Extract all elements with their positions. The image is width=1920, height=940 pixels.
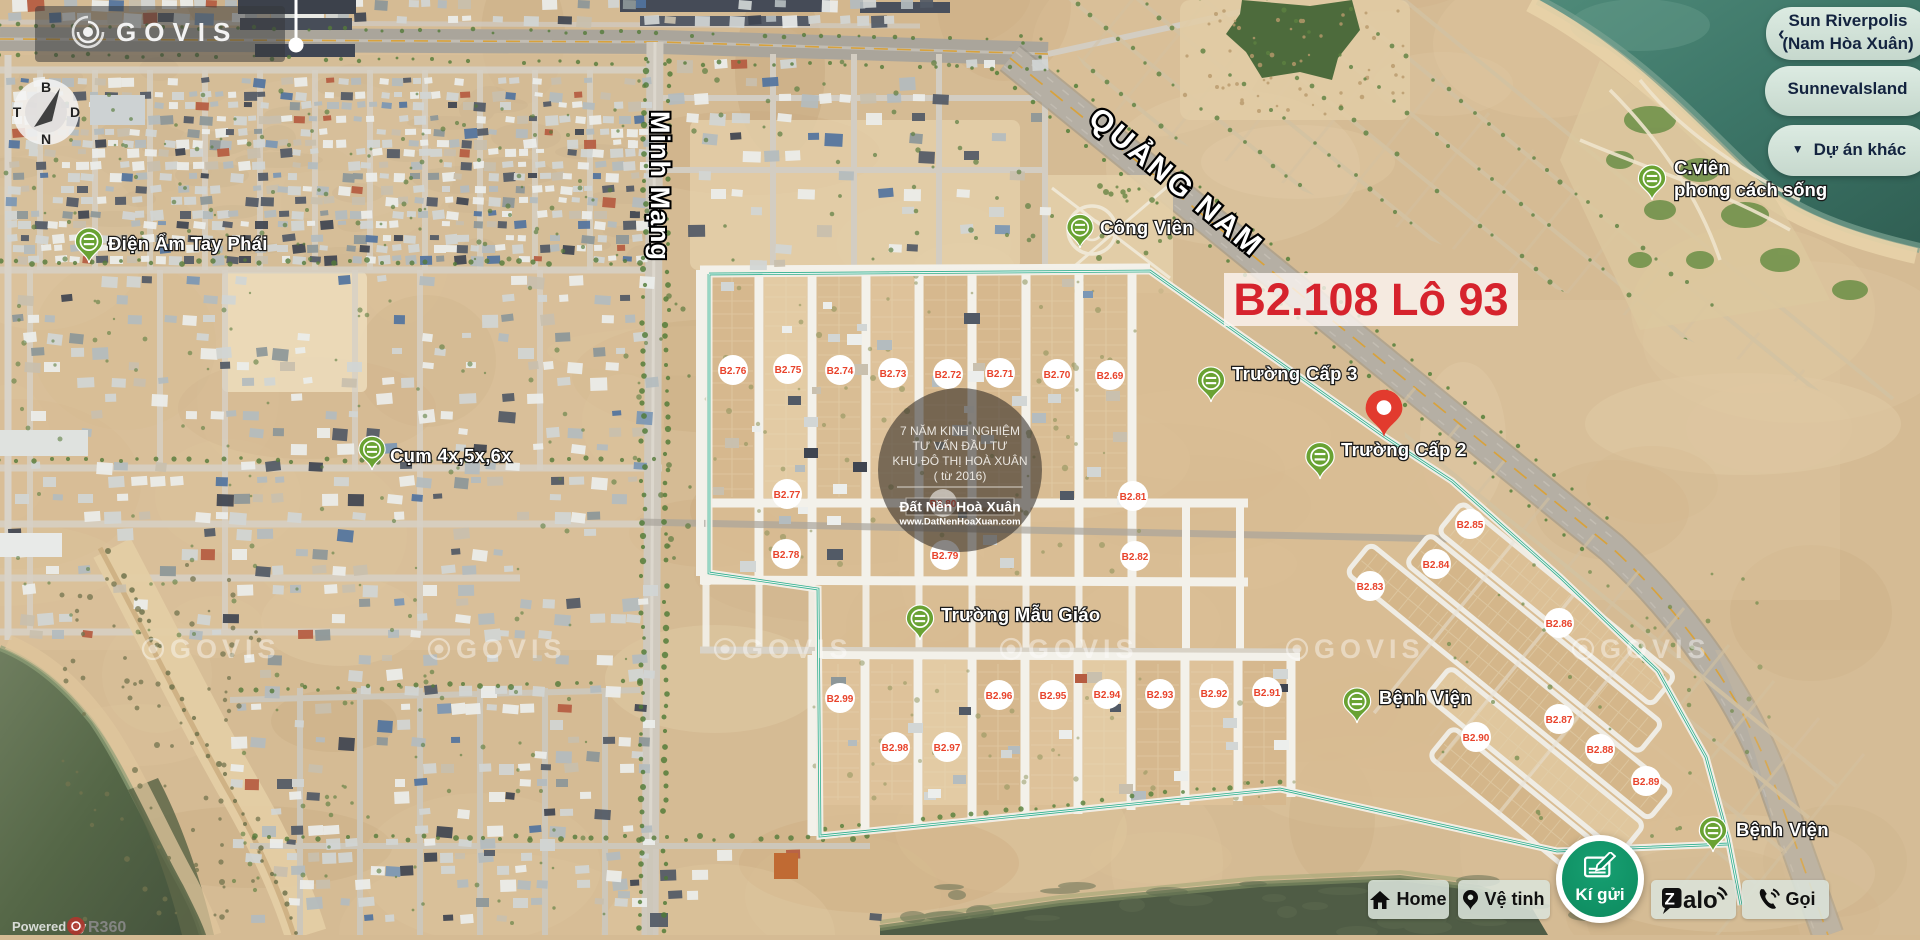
svg-text:B2.71: B2.71	[987, 369, 1014, 380]
svg-text:B2.88: B2.88	[1587, 745, 1614, 756]
svg-text:B2.77: B2.77	[774, 490, 801, 501]
svg-text:alo: alo	[1683, 887, 1718, 914]
svg-text:( từ 2016): ( từ 2016)	[934, 469, 987, 483]
svg-text:GOVIS: GOVIS	[742, 634, 853, 664]
svg-text:GOVIS: GOVIS	[116, 17, 238, 47]
svg-text:Đất Nền Hoà Xuân: Đất Nền Hoà Xuân	[899, 499, 1020, 515]
svg-text:B2.78: B2.78	[773, 550, 800, 561]
svg-text:B2.97: B2.97	[934, 743, 961, 754]
svg-text:Trường Cấp 2: Trường Cấp 2	[1341, 439, 1467, 460]
svg-text:7 NĂM KINH NGHIỆM: 7 NĂM KINH NGHIỆM	[900, 423, 1020, 438]
svg-text:B2.72: B2.72	[935, 370, 962, 381]
svg-text:GOVIS: GOVIS	[456, 634, 567, 664]
svg-text:B2.98: B2.98	[882, 743, 909, 754]
svg-text:B2.87: B2.87	[1546, 715, 1573, 726]
svg-text:Trường Mẫu Giáo: Trường Mẫu Giáo	[941, 604, 1101, 625]
svg-text:B2.74: B2.74	[827, 366, 854, 377]
svg-text:D: D	[70, 104, 80, 120]
svg-text:B2.75: B2.75	[775, 365, 802, 376]
svg-text:R360: R360	[88, 919, 126, 935]
svg-text:Trường Cấp 3: Trường Cấp 3	[1232, 363, 1358, 384]
svg-text:KHU ĐÔ THỊ HOÀ XUÂN: KHU ĐÔ THỊ HOÀ XUÂN	[892, 453, 1027, 468]
svg-text:GOVIS: GOVIS	[1028, 634, 1139, 664]
svg-text:B2.90: B2.90	[1463, 733, 1490, 744]
svg-text:B2.83: B2.83	[1357, 582, 1384, 593]
svg-text:GOVIS: GOVIS	[1314, 634, 1425, 664]
svg-text:B2.70: B2.70	[1044, 370, 1071, 381]
svg-text:B2.81: B2.81	[1120, 492, 1147, 503]
svg-text:Điện Ẩm Tay Phái: Điện Ẩm Tay Phái	[108, 233, 268, 254]
svg-text:Z: Z	[1664, 889, 1674, 908]
svg-text:T: T	[13, 104, 22, 120]
svg-text:B2.94: B2.94	[1094, 690, 1121, 701]
svg-text:B2.79: B2.79	[932, 551, 959, 562]
svg-text:B2.84: B2.84	[1423, 560, 1450, 571]
svg-text:B2.99: B2.99	[827, 694, 854, 705]
svg-text:www.DatNenHoaXuan.com: www.DatNenHoaXuan.com	[898, 517, 1020, 528]
svg-text:B: B	[41, 79, 51, 95]
svg-text:N: N	[41, 131, 51, 147]
svg-text:B2.89: B2.89	[1633, 777, 1660, 788]
svg-text:TƯ VẤN ĐẦU TƯ: TƯ VẤN ĐẦU TƯ	[913, 438, 1008, 453]
svg-text:GOVIS: GOVIS	[170, 634, 281, 664]
svg-text:B2.93: B2.93	[1147, 690, 1174, 701]
svg-text:B2.92: B2.92	[1201, 689, 1228, 700]
svg-text:Công Viên: Công Viên	[1100, 217, 1194, 238]
svg-text:B2.96: B2.96	[986, 691, 1013, 702]
svg-text:Minh Mạng: Minh Mạng	[645, 111, 675, 261]
svg-text:B2.85: B2.85	[1457, 520, 1484, 531]
svg-text:Cụm 4x,5x,6x: Cụm 4x,5x,6x	[390, 445, 512, 466]
svg-text:B2.95: B2.95	[1040, 691, 1067, 702]
svg-text:Bệnh Viện: Bệnh Viện	[1736, 819, 1829, 840]
svg-text:B2.76: B2.76	[720, 366, 747, 377]
svg-text:Bệnh Viện: Bệnh Viện	[1379, 687, 1472, 708]
svg-text:B2.82: B2.82	[1122, 552, 1149, 563]
svg-text:B2.73: B2.73	[880, 369, 907, 380]
svg-text:B2.91: B2.91	[1254, 688, 1281, 699]
svg-text:B2.69: B2.69	[1097, 371, 1124, 382]
svg-text:B2.86: B2.86	[1546, 619, 1573, 630]
svg-text:B2.108 Lô 93: B2.108 Lô 93	[1233, 274, 1508, 325]
svg-text:GOVIS: GOVIS	[1600, 634, 1711, 664]
